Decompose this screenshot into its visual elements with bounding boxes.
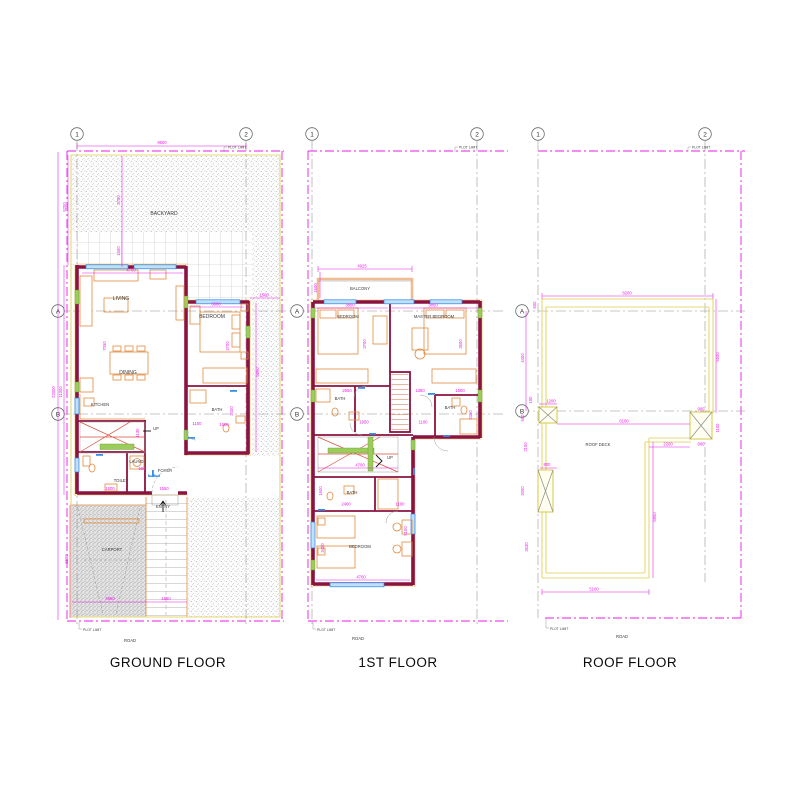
stair-up-label: UP	[387, 455, 393, 460]
room-label-bedroom: BEDROOM	[199, 314, 225, 320]
svg-text:900: 900	[698, 407, 706, 412]
svg-text:1100: 1100	[192, 421, 202, 426]
svg-text:1100: 1100	[395, 502, 405, 507]
svg-text:2: 2	[703, 131, 707, 138]
svg-text:1350: 1350	[415, 388, 425, 393]
grid-bubble-1: 1	[71, 128, 84, 141]
room-label-dining: DINING	[119, 370, 137, 376]
svg-text:PLOT LIMIT: PLOT LIMIT	[317, 628, 335, 632]
svg-text:1500: 1500	[259, 293, 269, 298]
svg-text:2: 2	[244, 131, 248, 138]
room-label-bedroom2: BEDROOM	[349, 544, 371, 549]
svg-text:9500: 9500	[157, 140, 167, 145]
svg-text:1600: 1600	[105, 486, 115, 491]
grid-bubble-1: 1	[532, 128, 545, 141]
svg-text:3530: 3530	[524, 542, 529, 552]
svg-text:1600: 1600	[318, 486, 323, 496]
grid-bubble-2: 2	[699, 128, 712, 141]
grid-bubble-2: 2	[240, 128, 253, 141]
svg-text:3500: 3500	[458, 339, 463, 349]
svg-text:1: 1	[536, 131, 540, 138]
svg-text:4700: 4700	[356, 575, 366, 580]
svg-text:11300: 11300	[58, 386, 63, 398]
svg-text:PLOT LIMIT: PLOT LIMIT	[692, 146, 710, 150]
svg-text:3600: 3600	[211, 302, 221, 307]
svg-text:PLOT LIMIT: PLOT LIMIT	[550, 627, 568, 631]
svg-text:1130: 1130	[135, 428, 140, 438]
svg-text:4950: 4950	[105, 596, 115, 601]
roof-dimensions: 8200 600 4400 5500 150 1200 600 6100 900…	[520, 291, 720, 596]
room-label-balcony: BALCONY	[350, 286, 370, 291]
svg-text:3700: 3700	[116, 195, 121, 205]
svg-text:1800: 1800	[455, 388, 465, 393]
svg-text:22000: 22000	[51, 386, 56, 398]
room-label-living: LIVING	[113, 296, 130, 302]
roof-plot-limit	[538, 151, 745, 618]
svg-text:1600: 1600	[313, 283, 318, 293]
room-label-entry: ENTRY	[156, 504, 170, 509]
grid-bubble-B: B	[291, 408, 304, 421]
room-label-bath: BATH	[445, 405, 456, 410]
svg-text:150: 150	[528, 396, 533, 404]
svg-text:2000: 2000	[520, 486, 525, 496]
svg-text:B: B	[520, 408, 524, 415]
grid-bubble-A: A	[516, 305, 529, 318]
roof-floor-plan: 1 2 A B ROOF DECK ROAD 8200 600 4400 550…	[516, 128, 745, 670]
svg-text:PLOT LIMIT: PLOT LIMIT	[459, 146, 477, 150]
room-label-bedroom: BEDROOM	[337, 314, 359, 319]
svg-text:1500: 1500	[116, 246, 121, 256]
svg-text:5100: 5100	[403, 526, 408, 536]
svg-text:3700: 3700	[362, 339, 367, 349]
ground-floor-plan: 1 2 A B	[51, 128, 290, 670]
svg-text:4700: 4700	[355, 463, 365, 468]
svg-text:2400: 2400	[229, 406, 234, 416]
svg-text:6950: 6950	[652, 512, 657, 522]
svg-text:4700: 4700	[126, 268, 136, 273]
room-label-bath: BATH	[212, 407, 223, 412]
svg-text:8200: 8200	[622, 291, 632, 296]
svg-text:2650: 2650	[342, 388, 352, 393]
svg-text:6100: 6100	[619, 419, 629, 424]
svg-text:A: A	[56, 308, 61, 315]
svg-text:A: A	[520, 308, 525, 315]
svg-text:5500: 5500	[715, 352, 720, 362]
svg-text:5100: 5100	[589, 587, 599, 592]
ground-floor-title: GROUND FLOOR	[110, 655, 226, 670]
room-label-backyard: BACKYARD	[150, 211, 178, 217]
svg-text:2200: 2200	[663, 442, 673, 447]
svg-text:660: 660	[139, 466, 147, 471]
svg-text:3850: 3850	[428, 303, 438, 308]
svg-text:PLOT LIMIT: PLOT LIMIT	[83, 628, 101, 632]
svg-text:5200: 5200	[62, 202, 67, 212]
svg-text:1: 1	[310, 131, 314, 138]
svg-text:600: 600	[532, 301, 537, 309]
room-label-roof-deck: ROOF DECK	[586, 442, 611, 447]
road-label: ROAD	[124, 638, 136, 643]
svg-text:7050: 7050	[102, 341, 107, 351]
ground-stairs	[80, 422, 151, 453]
svg-text:B: B	[295, 411, 299, 418]
road-label: ROAD	[616, 634, 628, 639]
svg-text:2: 2	[475, 131, 479, 138]
first-floor-title: 1ST FLOOR	[358, 655, 437, 670]
svg-text:1: 1	[75, 131, 79, 138]
room-label-kitchen: KITCHEN	[91, 402, 109, 407]
svg-text:1850: 1850	[161, 596, 171, 601]
roof-floor-title: ROOF FLOOR	[583, 655, 677, 670]
roof-deck-outline	[538, 299, 713, 578]
svg-text:1100: 1100	[418, 420, 428, 425]
svg-text:1100: 1100	[715, 423, 720, 433]
svg-text:4400: 4400	[520, 353, 525, 363]
grid-bubble-1: 1	[306, 128, 319, 141]
svg-text:2450: 2450	[468, 410, 473, 420]
svg-text:1600: 1600	[219, 422, 229, 427]
svg-text:4925: 4925	[357, 264, 367, 269]
svg-text:A: A	[295, 308, 300, 315]
svg-text:2400: 2400	[341, 502, 351, 507]
roof-plot-limit-tags: PLOT LIMIT PLOT LIMIT	[546, 146, 710, 632]
svg-text:3700: 3700	[225, 341, 230, 351]
first-floor-plan: 1 2 A B	[291, 128, 508, 670]
room-label-foyer: FOYER	[158, 468, 172, 473]
floor-plan-sheet: 1 2 A B	[0, 0, 800, 800]
room-label-toilet: TOILET	[114, 478, 129, 483]
room-label-laundry: LAUND.	[129, 459, 144, 464]
svg-text:PLOT LIMIT: PLOT LIMIT	[228, 146, 246, 150]
svg-text:600: 600	[520, 414, 525, 422]
svg-text:3850: 3850	[345, 303, 355, 308]
grid-bubble-A: A	[291, 305, 304, 318]
svg-text:2150: 2150	[523, 442, 528, 452]
stair-up-label: UP	[153, 426, 159, 431]
grid-bubble-2: 2	[471, 128, 484, 141]
room-label-carport: CARPORT	[102, 547, 123, 552]
svg-text:1950: 1950	[359, 420, 369, 425]
svg-text:1550: 1550	[159, 486, 169, 491]
svg-text:3400: 3400	[320, 543, 325, 553]
road-label: ROAD	[352, 636, 364, 641]
svg-text:5550: 5550	[64, 554, 69, 564]
room-label-bath: BATH	[335, 396, 346, 401]
svg-text:6860: 6860	[255, 367, 260, 377]
svg-text:800: 800	[544, 462, 552, 467]
room-label-master-bedroom: MASTER BEDROOM	[414, 314, 455, 319]
svg-text:900: 900	[698, 442, 706, 447]
svg-text:1200: 1200	[546, 399, 556, 404]
room-label-bath: BATH	[347, 490, 358, 495]
roof-grid-lines	[520, 141, 745, 618]
